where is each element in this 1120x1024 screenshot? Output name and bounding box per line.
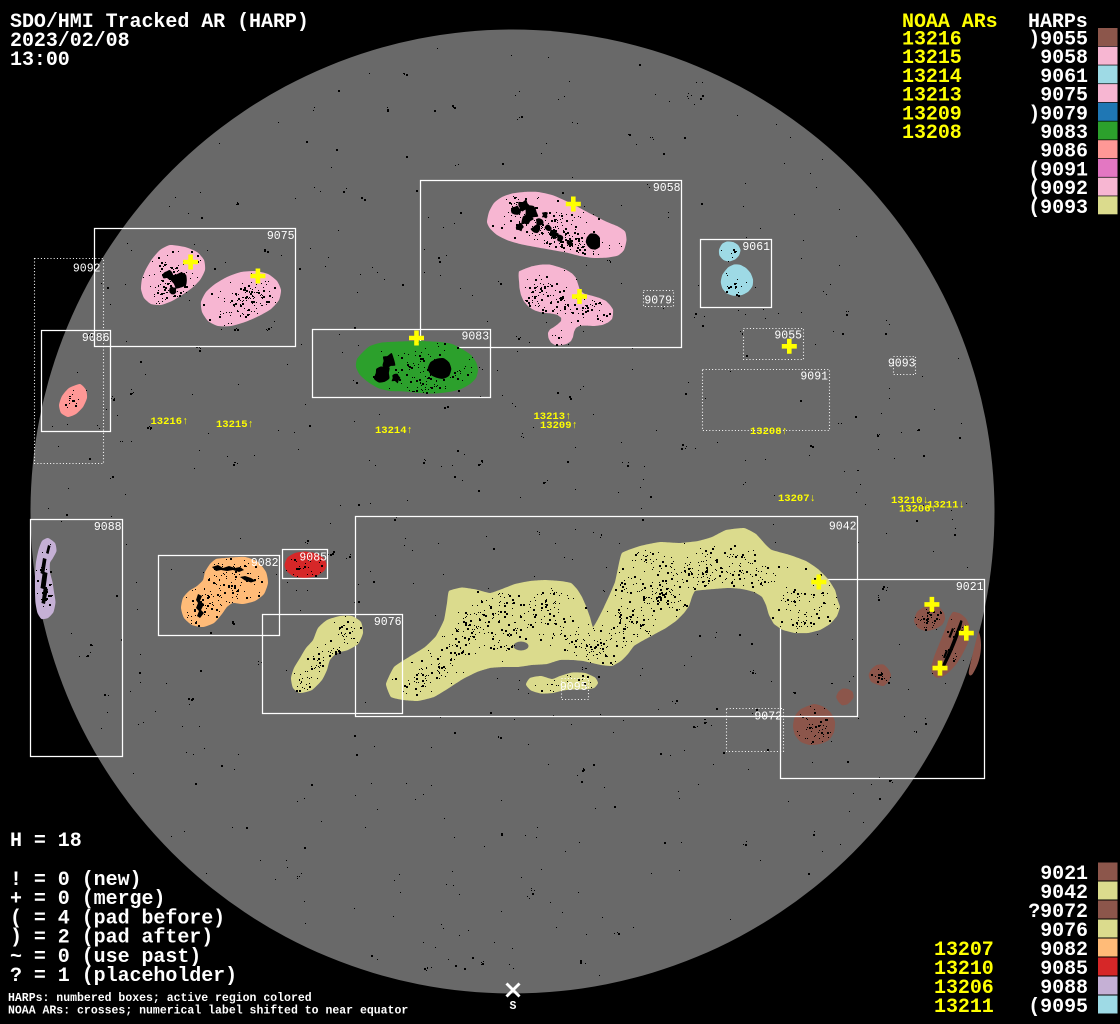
- svg-text:13207↓: 13207↓: [778, 493, 816, 505]
- svg-text:9076: 9076: [374, 616, 402, 629]
- svg-text:9083: 9083: [461, 331, 489, 344]
- svg-text:9072: 9072: [754, 711, 782, 724]
- svg-text:13216↑: 13216↑: [151, 416, 189, 428]
- svg-text:? = 1 (placeholder): ? = 1 (placeholder): [10, 965, 237, 988]
- svg-text:9082: 9082: [251, 557, 279, 570]
- svg-text:13209↑: 13209↑: [540, 420, 578, 432]
- svg-text:9086: 9086: [82, 332, 110, 345]
- svg-text:9091: 9091: [800, 371, 828, 384]
- svg-text:13211: 13211: [934, 996, 994, 1019]
- svg-text:9042: 9042: [829, 521, 857, 534]
- svg-text:9075: 9075: [267, 230, 295, 243]
- svg-text:13214↑: 13214↑: [375, 425, 413, 437]
- svg-text:(9093: (9093: [1028, 197, 1088, 220]
- svg-text:S: S: [510, 1000, 517, 1013]
- svg-text:9092: 9092: [73, 263, 101, 276]
- svg-text:13208: 13208: [902, 122, 962, 145]
- svg-text:9021: 9021: [956, 581, 984, 594]
- svg-text:(9095: (9095: [1028, 996, 1088, 1019]
- svg-text:9079: 9079: [644, 295, 672, 308]
- svg-text:9058: 9058: [653, 182, 681, 195]
- svg-text:H = 18: H = 18: [10, 830, 82, 853]
- svg-text:9061: 9061: [742, 241, 770, 254]
- svg-text:9095: 9095: [560, 681, 588, 694]
- svg-text:HARPs: numbered boxes; active: HARPs: numbered boxes; active region col…: [8, 992, 312, 1005]
- svg-text:9085: 9085: [299, 552, 327, 565]
- svg-text:NOAA ARs: crosses; numerical l: NOAA ARs: crosses; numerical label shift…: [8, 1005, 408, 1018]
- svg-text:13:00: 13:00: [10, 49, 70, 72]
- svg-text:13215↑: 13215↑: [216, 419, 254, 431]
- svg-text:9088: 9088: [94, 521, 122, 534]
- svg-text:13208↑: 13208↑: [750, 426, 788, 438]
- svg-text:9093: 9093: [888, 358, 916, 371]
- svg-text:13206↓: 13206↓: [899, 504, 937, 516]
